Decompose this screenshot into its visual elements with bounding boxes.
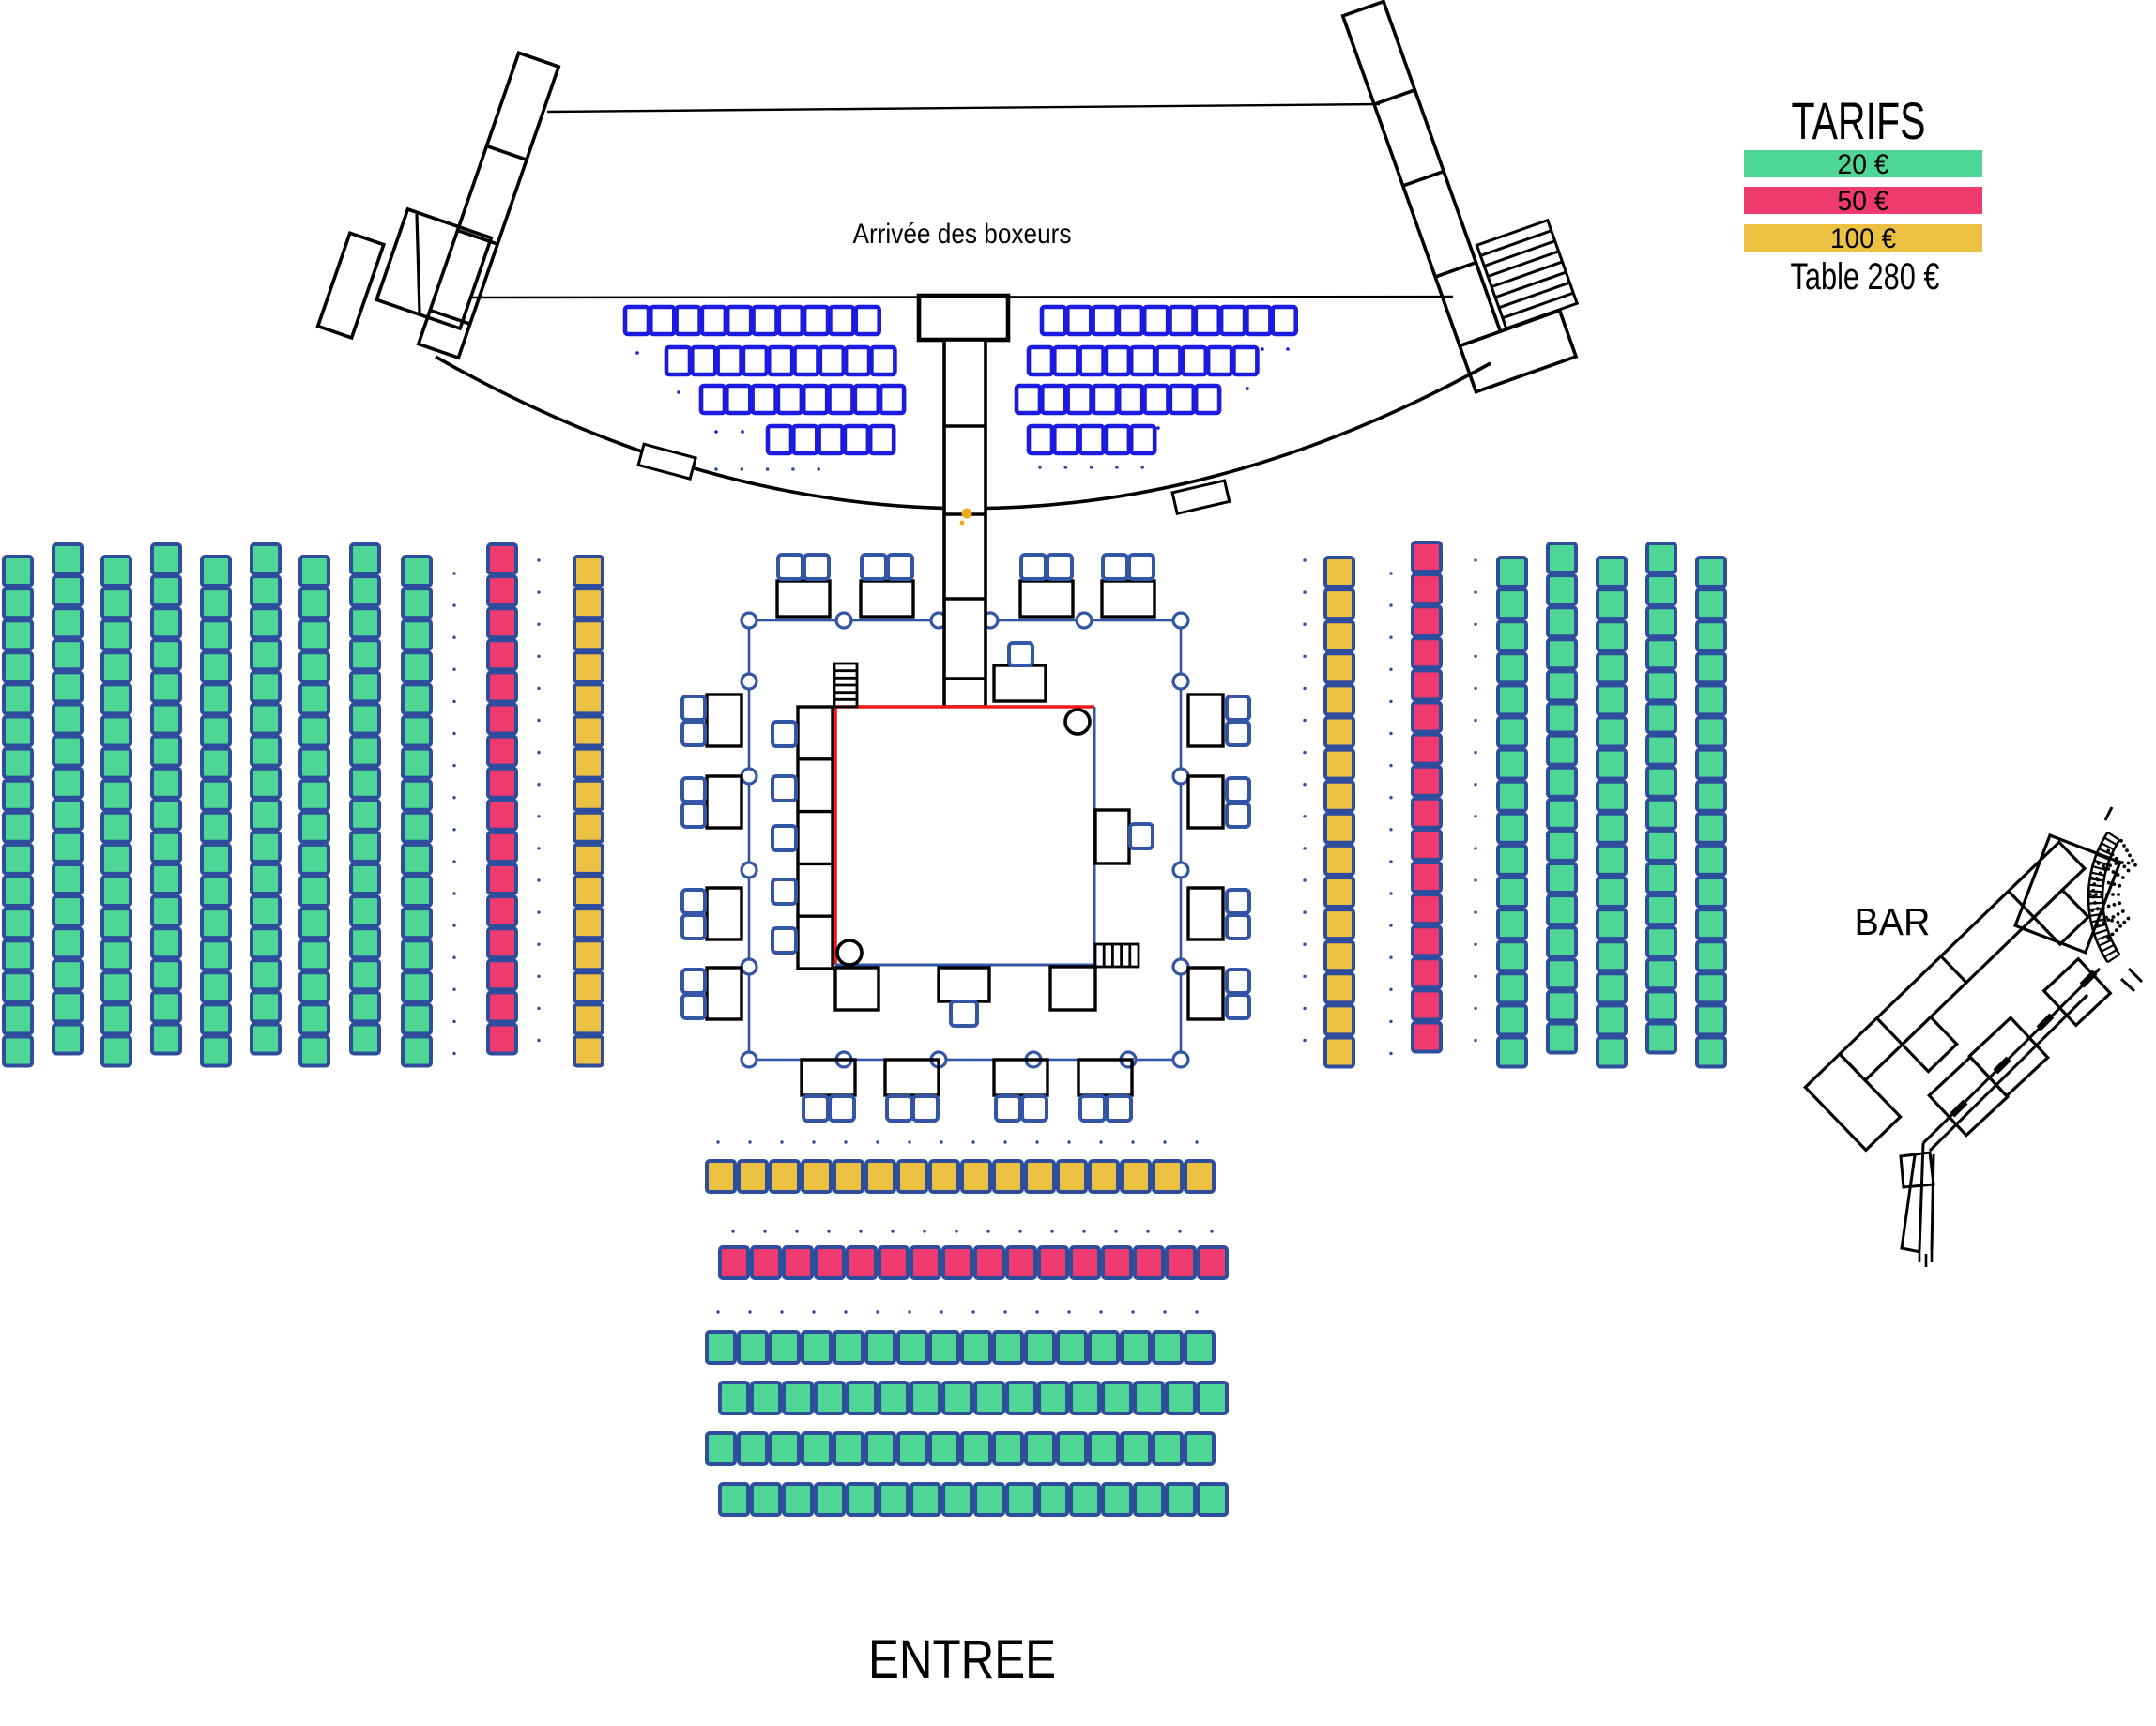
svg-text:100 €: 100 € xyxy=(1830,223,1896,254)
svg-text:50 €: 50 € xyxy=(1838,186,1889,217)
svg-text:ENTREE: ENTREE xyxy=(868,1629,1056,1690)
svg-text:Arrivée des boxeurs: Arrivée des boxeurs xyxy=(853,219,1072,250)
svg-text:TARIFS: TARIFS xyxy=(1792,91,1926,150)
svg-text:BAR: BAR xyxy=(1855,900,1931,943)
svg-text:Table 280 €: Table 280 € xyxy=(1791,256,1940,298)
svg-text:20 €: 20 € xyxy=(1838,149,1889,180)
